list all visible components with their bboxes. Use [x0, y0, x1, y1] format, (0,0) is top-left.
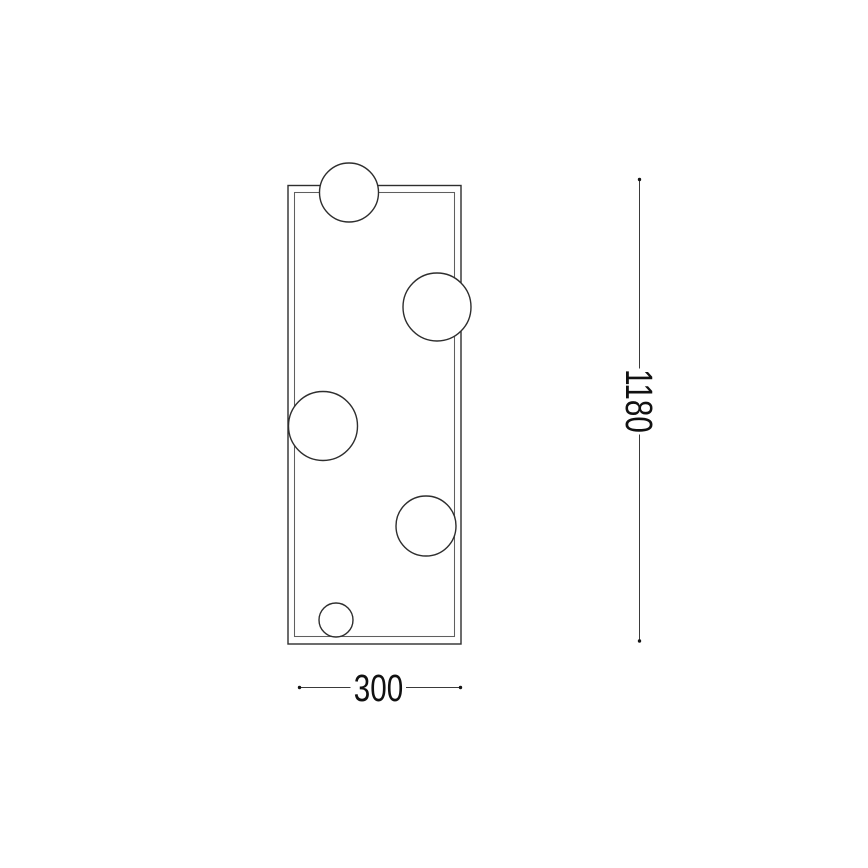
drawing-canvas: 1180 300 — [0, 0, 868, 868]
height-dim-end-dot-1 — [638, 178, 641, 181]
dimension-drawing-svg: 1180 300 — [0, 0, 868, 868]
width-dimension-label: 300 — [354, 668, 403, 710]
sphere-circle-4 — [396, 496, 456, 556]
sphere-circle-5 — [319, 603, 353, 637]
height-dimension-label: 1180 — [617, 369, 659, 433]
spheres-group — [289, 163, 472, 637]
height-dim-end-dot-2 — [638, 639, 641, 642]
sphere-circle-1 — [320, 163, 379, 222]
width-dim-end-dot-1 — [298, 686, 301, 689]
width-dim-end-dot-2 — [459, 686, 462, 689]
sphere-circle-2 — [403, 273, 471, 341]
sphere-circle-3 — [289, 392, 358, 461]
